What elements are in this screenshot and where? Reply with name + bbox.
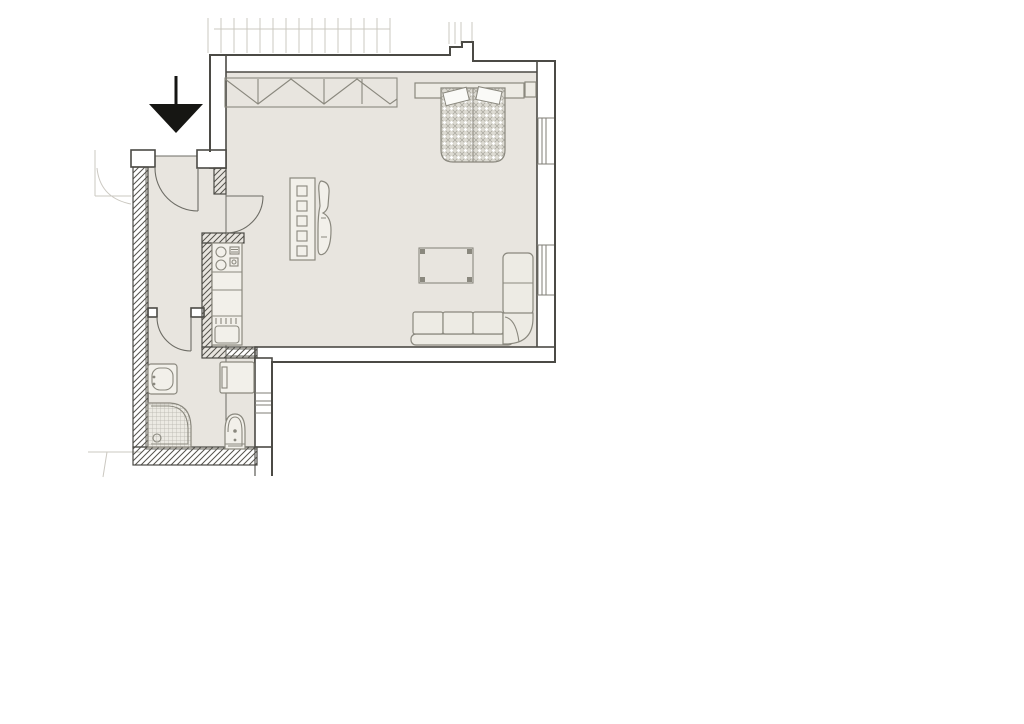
sofa-chaise <box>503 253 533 315</box>
toilet <box>225 414 245 449</box>
washbasin <box>148 364 177 394</box>
washing-machine <box>220 362 254 393</box>
bottom-exterior-wall-hatched <box>133 447 257 465</box>
floor-plan-page <box>0 0 1024 724</box>
sofa-cushion-2 <box>443 312 473 334</box>
sofa-cushion-3 <box>473 312 503 334</box>
kitchen-units <box>212 243 242 345</box>
ghost-door-swing <box>97 168 131 204</box>
entrance-arrow-icon <box>149 76 203 133</box>
left-exterior-wall-hatched <box>133 167 148 447</box>
top-wall <box>210 42 555 72</box>
sofa-front-rail <box>411 334 513 345</box>
floor-plan <box>0 0 1024 724</box>
bottom-wall-living <box>255 347 555 362</box>
entry-jamb-right <box>197 150 226 168</box>
right-wall <box>537 61 555 362</box>
kitchen-top-wall-hatched <box>202 233 244 243</box>
shelf-unit <box>290 178 315 260</box>
sofa-cushion-1 <box>413 312 443 334</box>
kitchen-bottom-wall-hatched <box>202 347 257 358</box>
kitchen-left-wall-hatched <box>202 243 212 347</box>
bathroom-right-wall <box>255 358 272 447</box>
entry-jamb-left <box>131 150 155 167</box>
shower <box>148 403 191 447</box>
door-pier-hatched <box>214 168 226 194</box>
balcony-tick-lines <box>208 18 472 53</box>
nightstand <box>525 82 536 97</box>
bath-door-jamb-left <box>148 308 157 317</box>
